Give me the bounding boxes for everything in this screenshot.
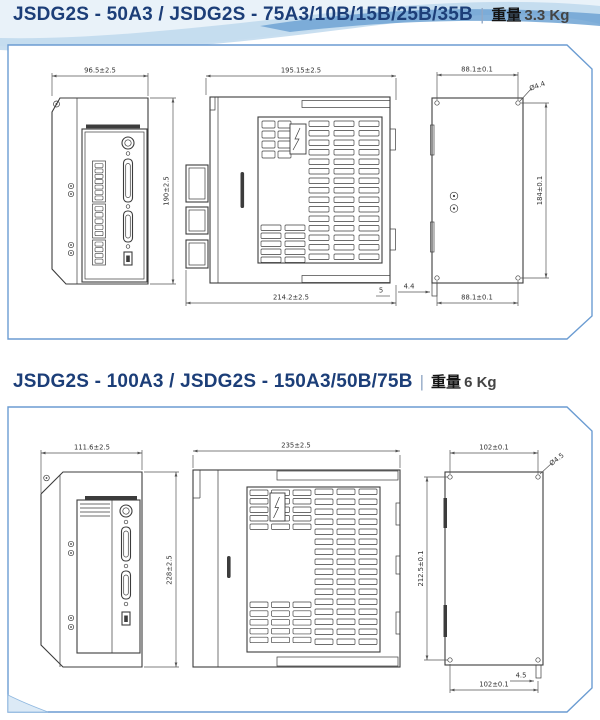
dim-rear-bottom-span-s1: 88.1±0.1 — [461, 294, 493, 302]
dim-front-width-s2: 111.6±2.5 — [74, 444, 110, 452]
dimension-drawings: 96.5±2.5 190±2.5 195.15±2.5 214.2±2.5 — [0, 0, 600, 720]
dim-rear-tab-s2: 4.5 — [516, 672, 527, 680]
dim-rear-height-s2: 212.5±0.1 — [417, 551, 425, 587]
weight-label-2: 重量 — [431, 374, 461, 391]
dim-rear-height-s1: 184±0.1 — [536, 176, 544, 205]
dim-rear-tab-s1: 4.4 — [404, 283, 415, 291]
dim-side-depth-s2: 235±2.5 — [281, 442, 310, 450]
section-1-title: JSDG2S - 50A3 / JSDG2S - 75A3/10B/15B/25… — [13, 4, 569, 26]
weight-value-2: 6 Kg — [464, 374, 497, 391]
dim-rear-bottom-span-s2: 102±0.1 — [479, 681, 508, 689]
title-separator-1: | — [480, 5, 484, 24]
model-names-1: JSDG2S - 50A3 / JSDG2S - 75A3/10B/15B/25… — [13, 4, 473, 25]
dim-front-height-s2: 228±2.5 — [166, 555, 174, 584]
dim-side-depth-s1: 195.15±2.5 — [281, 67, 321, 75]
datasheet-page: 96.5±2.5 190±2.5 195.15±2.5 214.2±2.5 — [0, 0, 600, 720]
title-separator-2: | — [420, 372, 424, 391]
dim-side-edge-offset-s1: 5 — [379, 287, 383, 295]
dim-rear-top-span-s2: 102±0.1 — [479, 444, 508, 452]
weight-value-1: 3.3 Kg — [524, 7, 569, 24]
dim-front-width-s1: 96.5±2.5 — [84, 67, 116, 75]
model-names-2: JSDG2S - 100A3 / JSDG2S - 150A3/50B/75B — [13, 371, 413, 392]
dim-side-total-depth-s1: 214.2±2.5 — [273, 294, 309, 302]
dim-rear-top-span-s1: 88.1±0.1 — [461, 66, 493, 74]
dim-front-height-s1: 190±2.5 — [163, 176, 171, 205]
section-2-title: JSDG2S - 100A3 / JSDG2S - 150A3/50B/75B|… — [13, 371, 497, 393]
weight-label-1: 重量 — [491, 7, 521, 24]
